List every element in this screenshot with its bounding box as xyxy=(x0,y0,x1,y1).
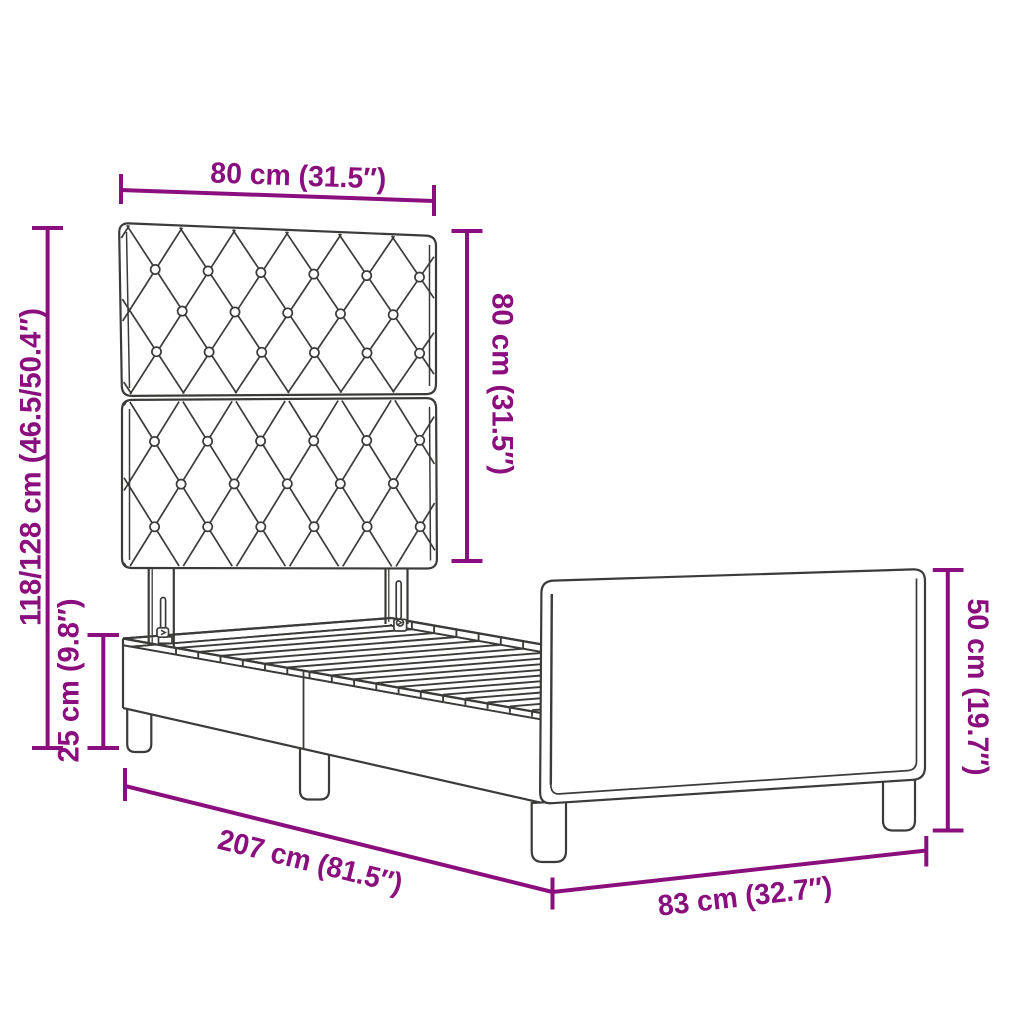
svg-text:80 cm (31.5″): 80 cm (31.5″) xyxy=(486,293,518,475)
svg-text:50 cm (19.7″): 50 cm (19.7″) xyxy=(961,599,993,776)
svg-text:80 cm (31.5″): 80 cm (31.5″) xyxy=(210,157,387,195)
svg-text:118/128 cm (46.5/50.4″): 118/128 cm (46.5/50.4″) xyxy=(16,308,48,626)
svg-text:25 cm (9.8″): 25 cm (9.8″) xyxy=(54,599,86,763)
